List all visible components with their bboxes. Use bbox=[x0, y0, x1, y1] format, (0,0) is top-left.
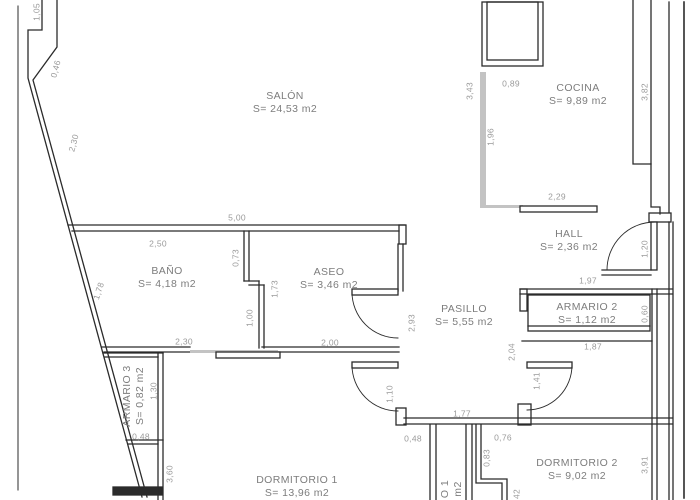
wall-armario3-top bbox=[103, 353, 163, 357]
wall-aseo-right bbox=[398, 244, 403, 291]
wall-diagonal-outer bbox=[28, 0, 142, 497]
wall-dorm2-L-inner bbox=[481, 425, 507, 500]
wall-balcony bbox=[633, 0, 651, 164]
wall-bedrooms-top bbox=[404, 418, 672, 424]
wall-aseo-bottom bbox=[262, 347, 399, 352]
wall-armario2-top bbox=[520, 289, 672, 294]
wall-bano-bottom bbox=[102, 347, 190, 352]
kitchen-counter-outer bbox=[482, 2, 543, 66]
floor-plan: SALÓNS= 24,53 m2COCINAS= 9,89 m2HALLS= 2… bbox=[0, 0, 700, 500]
door-arc-dorm2 bbox=[527, 365, 572, 410]
kitchen-counter-inner bbox=[487, 2, 538, 60]
wall-smallroom-right bbox=[466, 425, 472, 500]
wall-bottom-left bbox=[113, 487, 162, 495]
jamb-armario2-left bbox=[520, 289, 527, 311]
wall-hall-threshold bbox=[602, 270, 651, 275]
door-arc-dorm1 bbox=[352, 365, 398, 411]
wall-armario3-right bbox=[158, 353, 163, 500]
wall-bano-aseo-lower bbox=[259, 281, 264, 348]
wall-dorm2-right bbox=[652, 289, 657, 500]
sliding-door-panel-bano bbox=[216, 352, 280, 358]
wall-right-channel bbox=[669, 222, 673, 500]
wall-smallroom-left bbox=[430, 425, 436, 500]
door-arc-aseo bbox=[352, 292, 398, 338]
walls-drawing bbox=[0, 0, 700, 500]
wall-diagonal-inner bbox=[33, 0, 147, 497]
sliding-door-rail-cocina bbox=[480, 205, 523, 208]
wall-balcony-stub bbox=[651, 164, 660, 214]
jamb-dorm2 bbox=[518, 404, 531, 425]
jamb-aseo-topright bbox=[399, 225, 406, 244]
door-leaf-entry bbox=[651, 222, 657, 270]
wall-main-top bbox=[68, 225, 405, 231]
door-leaf-dorm2 bbox=[527, 362, 572, 368]
door-arc-entry bbox=[607, 222, 655, 270]
wall-bano-aseo-jog bbox=[244, 281, 264, 285]
wall-bano-aseo-upper bbox=[244, 231, 249, 281]
partition-salon-cocina bbox=[480, 72, 486, 207]
sliding-door-panel-cocina bbox=[520, 206, 597, 212]
wall-dorm2-L-outer bbox=[476, 425, 502, 500]
door-leaf-aseo bbox=[352, 289, 398, 295]
door-leaf-dorm1 bbox=[352, 362, 398, 368]
